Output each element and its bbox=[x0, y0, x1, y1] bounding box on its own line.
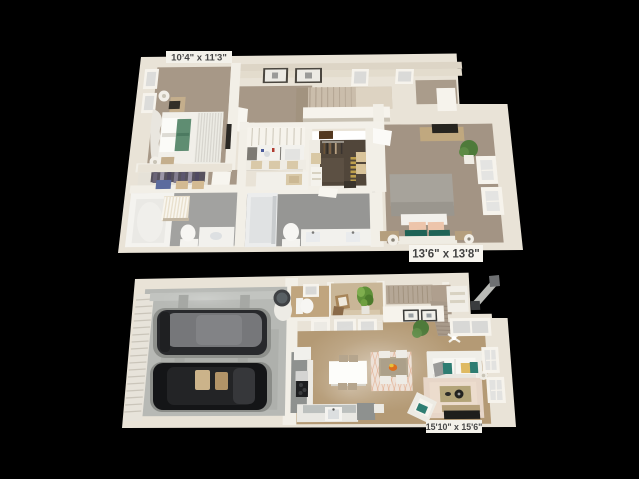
svg-text:13'6" x 13'8": 13'6" x 13'8" bbox=[412, 249, 480, 261]
svg-text:15'10" x 15'6": 15'10" x 15'6" bbox=[426, 422, 483, 432]
svg-text:10’4" x 11'3": 10’4" x 11'3" bbox=[171, 53, 227, 64]
